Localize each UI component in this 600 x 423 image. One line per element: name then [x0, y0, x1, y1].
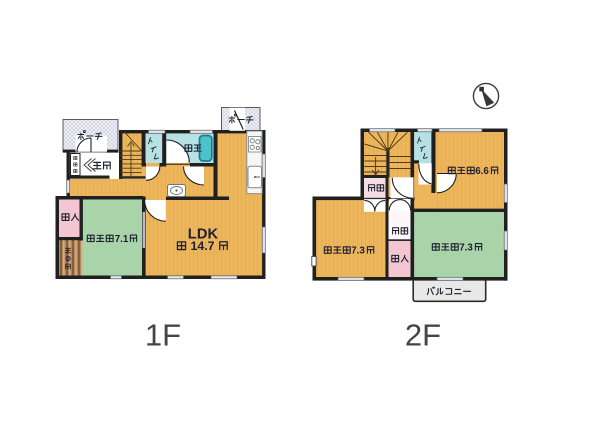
svg-text:2F: 2F: [405, 318, 441, 353]
svg-text:7.1: 7.1: [115, 234, 129, 245]
svg-text:1F: 1F: [145, 318, 181, 353]
svg-text:14.7: 14.7: [190, 239, 214, 253]
svg-text:7.3: 7.3: [459, 242, 473, 253]
svg-text:7.3: 7.3: [351, 246, 365, 257]
svg-text:6.6: 6.6: [475, 166, 489, 177]
